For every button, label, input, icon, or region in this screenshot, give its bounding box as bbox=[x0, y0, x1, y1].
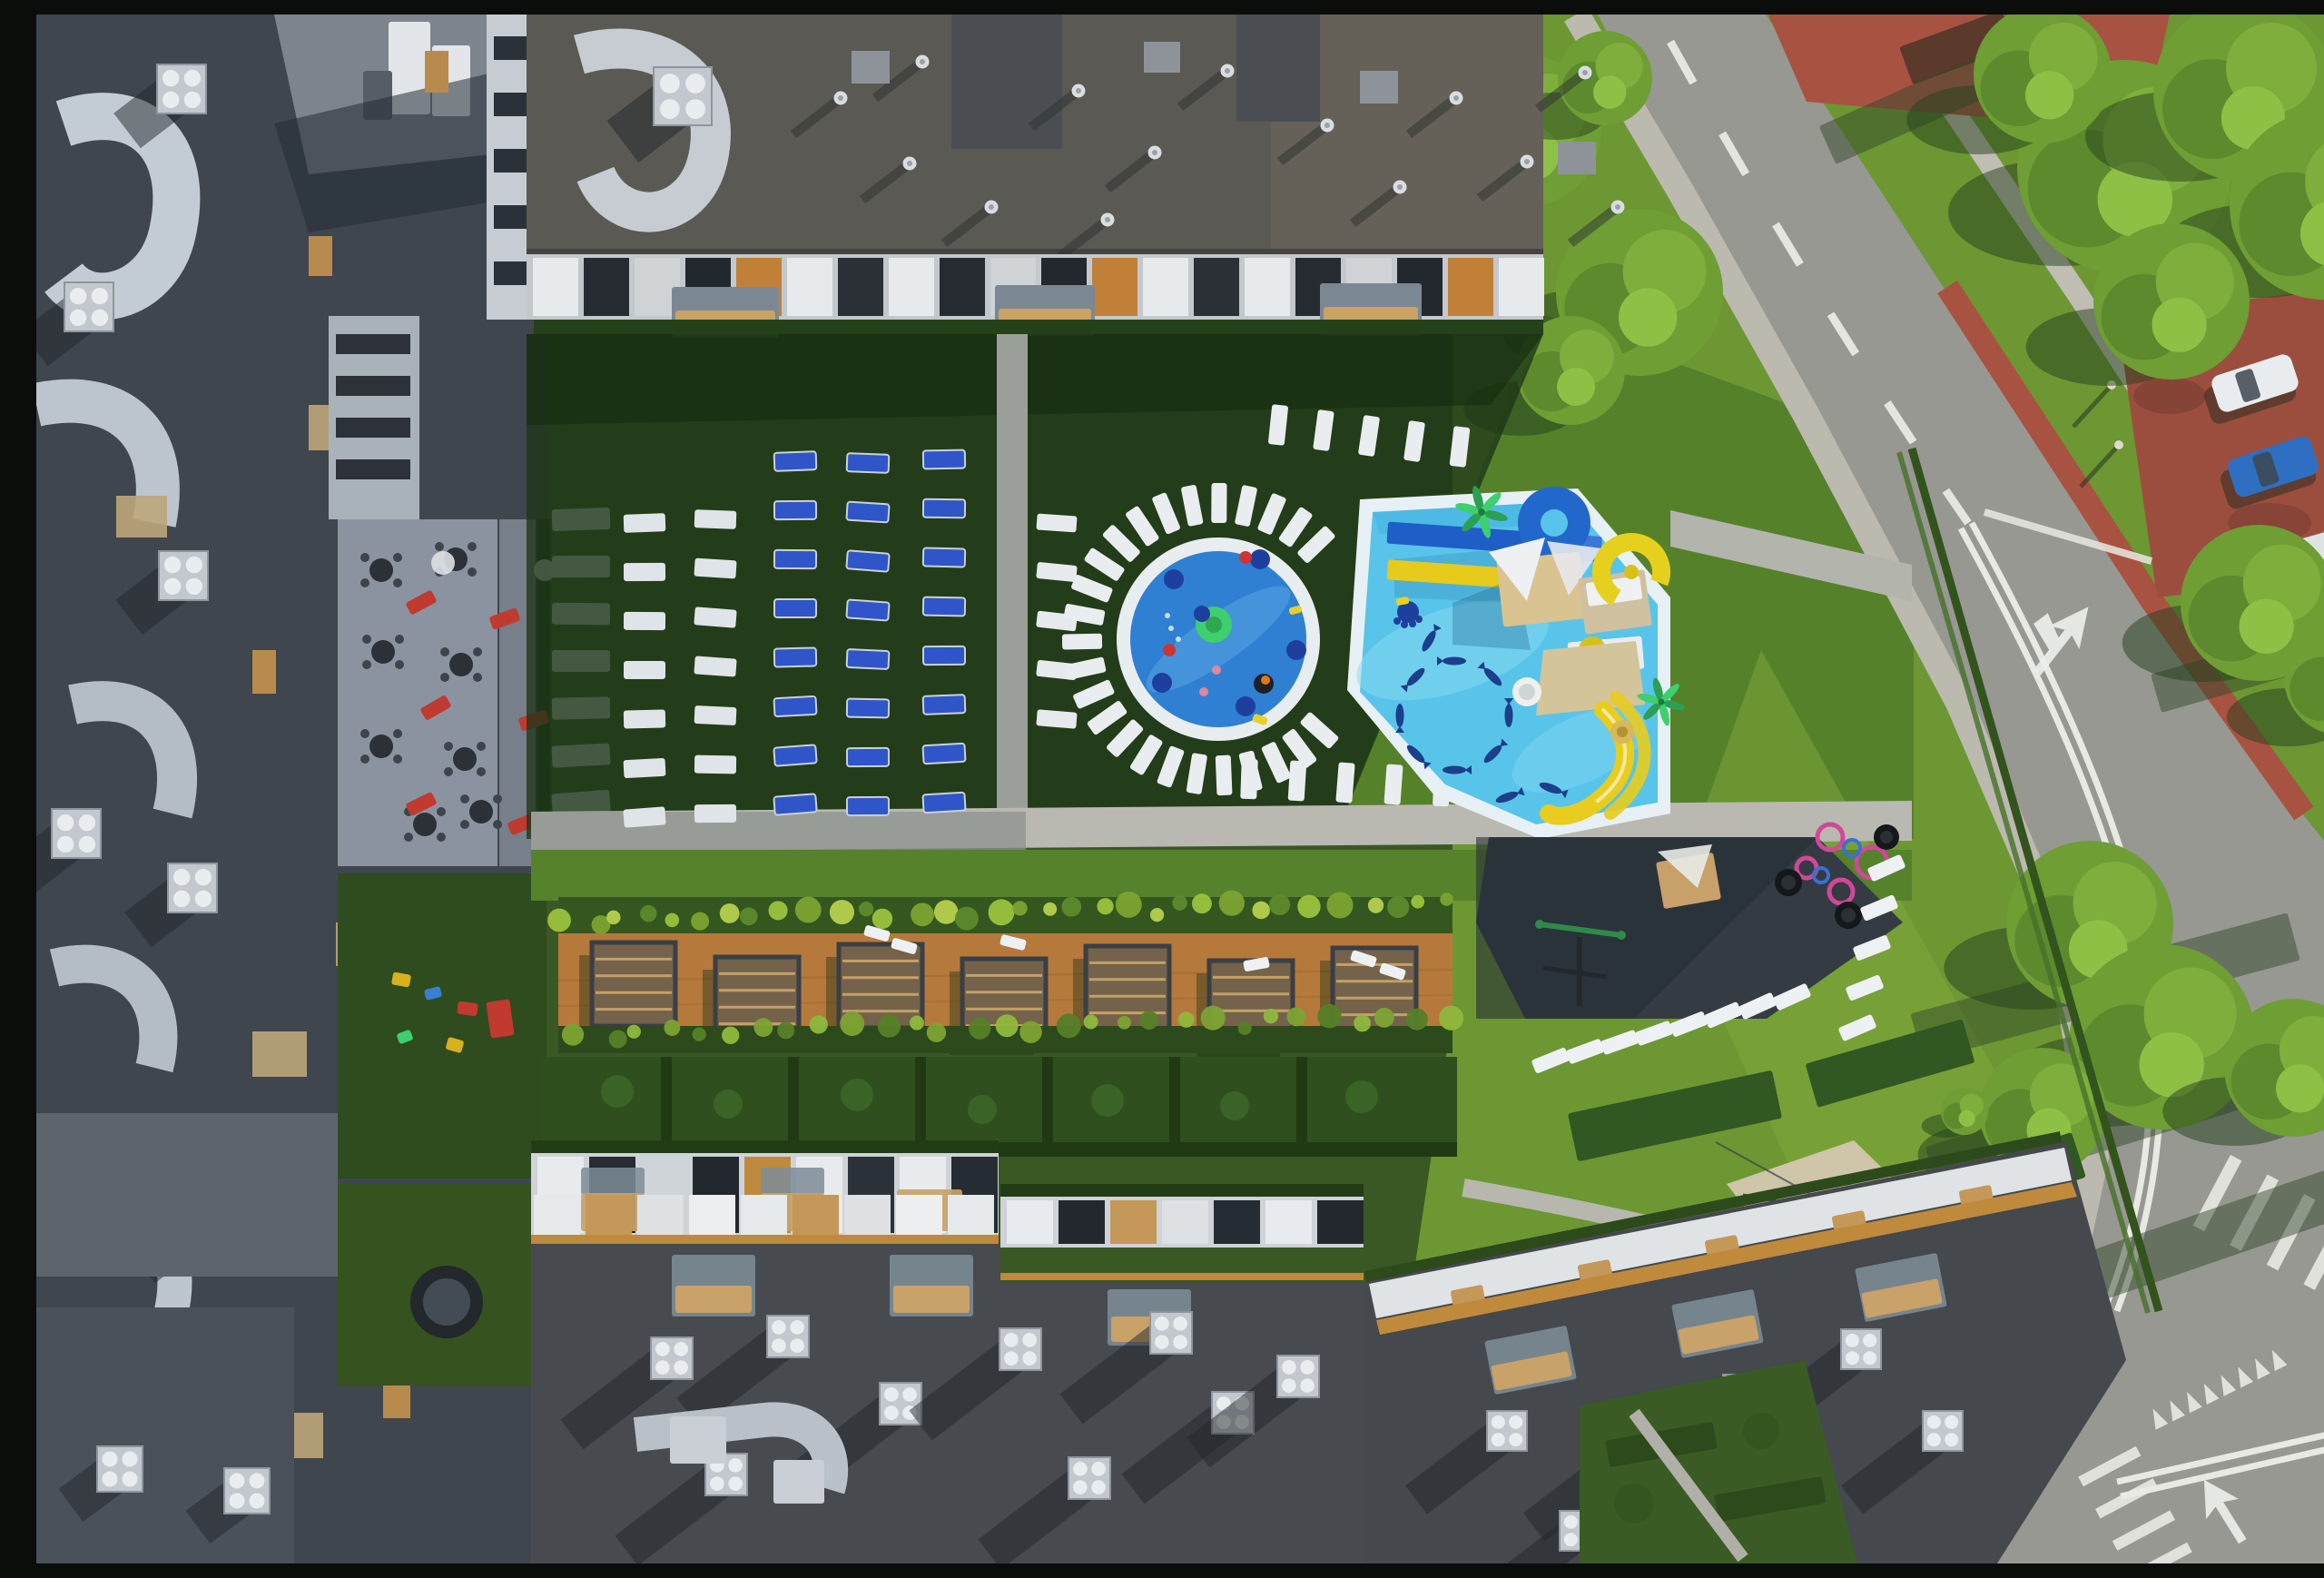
roof-trim-orange bbox=[531, 1235, 999, 1244]
facade-hedge bbox=[534, 320, 1543, 334]
parking-wear-patch bbox=[2133, 378, 2206, 414]
courtyard-path bbox=[997, 334, 1028, 839]
mid-facade-hedge bbox=[1000, 1184, 1364, 1197]
terrace-skylight-row bbox=[534, 1195, 994, 1235]
aerial-photo-resort-complex bbox=[36, 15, 2324, 1563]
roof-terrace-notch bbox=[951, 15, 1062, 149]
mid-facade-windows bbox=[1007, 1200, 1364, 1244]
playground-toy bbox=[486, 999, 514, 1038]
left-roof-block bbox=[36, 1307, 294, 1563]
sun-decal-core bbox=[1617, 726, 1628, 737]
left-roof-block bbox=[36, 1113, 338, 1277]
splash-deco-ladybug-spot bbox=[1261, 676, 1270, 685]
roof-edge bbox=[527, 249, 1543, 254]
play-lawn bbox=[338, 873, 547, 1179]
roof-terrace-notch bbox=[1236, 15, 1320, 122]
walkway-shadow bbox=[531, 812, 1026, 852]
tunnel-cylinder-core bbox=[1519, 684, 1535, 700]
roof-trim-orange bbox=[1000, 1273, 1364, 1280]
private-gardens bbox=[542, 1057, 1457, 1151]
spiral-slide-center bbox=[1624, 565, 1639, 579]
trampoline-mat bbox=[423, 1278, 470, 1326]
bottom-facade-hedge bbox=[531, 1140, 999, 1155]
scene-canvas bbox=[36, 15, 2324, 1563]
donut-ring-hole bbox=[1541, 509, 1568, 537]
